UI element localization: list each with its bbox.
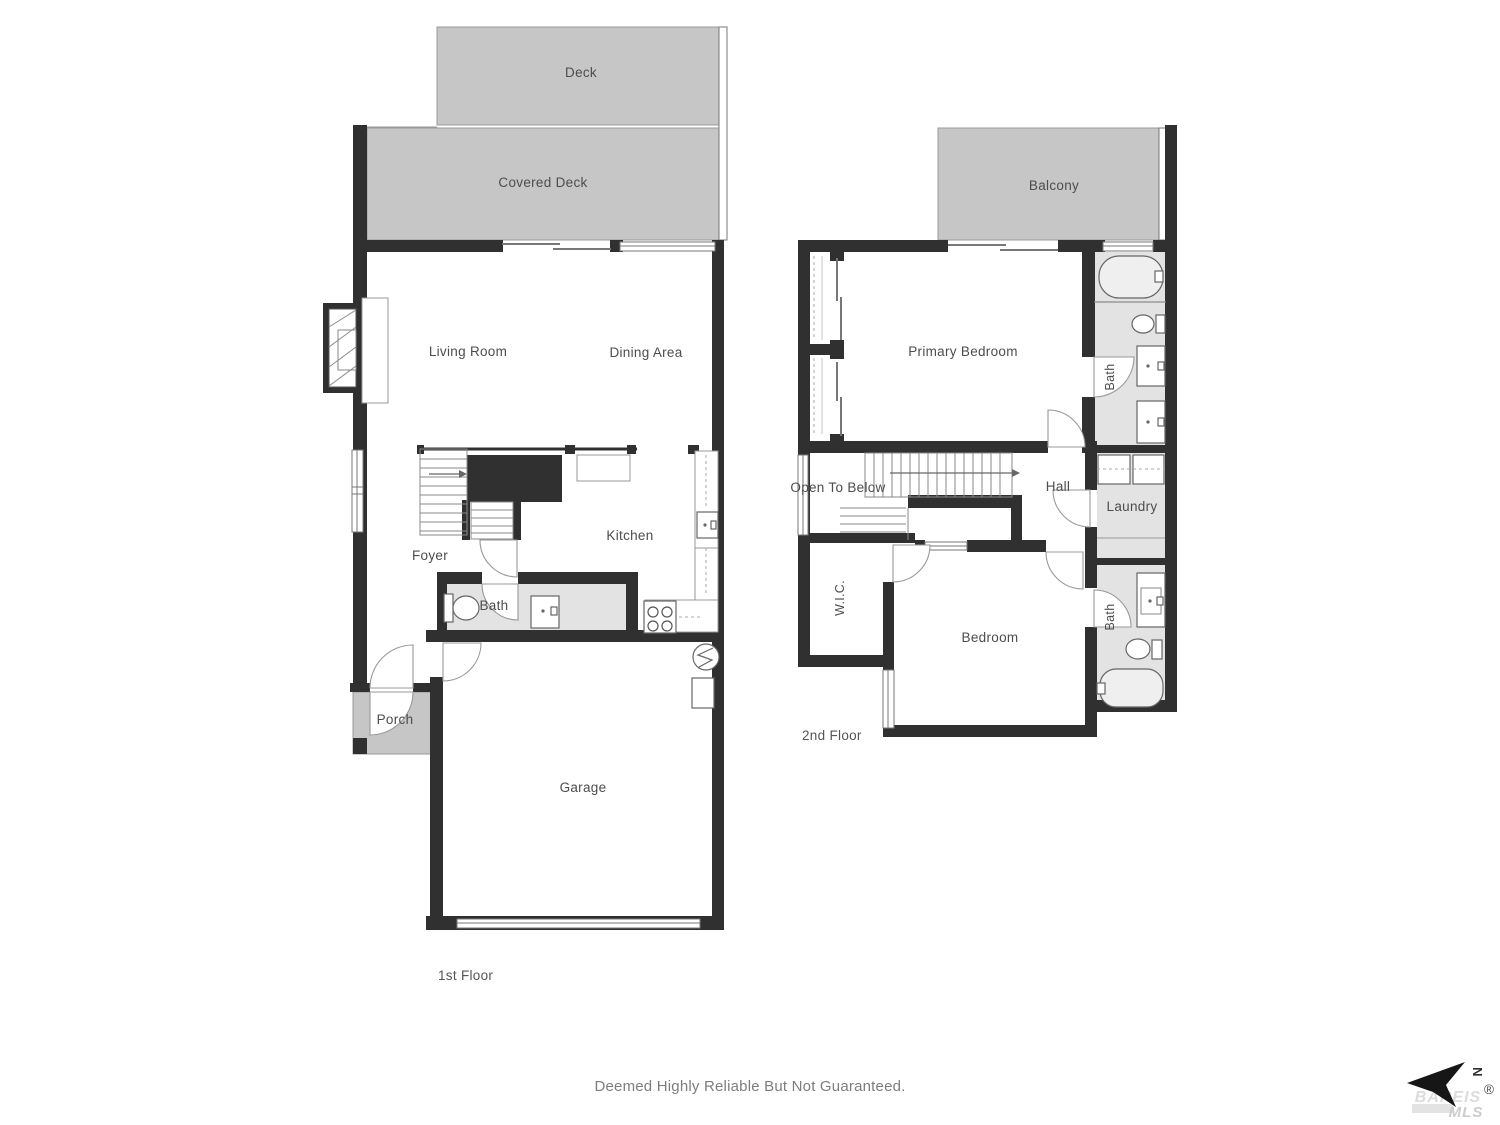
understair-closet-door-swing (480, 540, 517, 577)
primary-toilet (1132, 315, 1154, 333)
deck-label: Deck (565, 65, 597, 80)
toilet (453, 596, 479, 620)
deck-railing (719, 27, 727, 240)
floor-plan-page: Deck Covered Deck Living Room Dining Are… (0, 0, 1500, 1125)
front-door-swing-inner (370, 645, 413, 688)
garage-label: Garage (560, 780, 607, 795)
laundry-label: Laundry (1107, 499, 1158, 514)
bath2-toilet (1126, 639, 1150, 659)
wic-door-swing (893, 545, 930, 582)
disclaimer-text: Deemed Highly Reliable But Not Guarantee… (594, 1078, 905, 1095)
primary-bedroom-label: Primary Bedroom (908, 344, 1018, 359)
bedroom-door-swing (1046, 552, 1083, 589)
wic-label: W.I.C. (833, 580, 847, 616)
bath2-tub (1100, 669, 1163, 707)
floor-plan-drawing: Deck Covered Deck Living Room Dining Are… (0, 0, 1500, 1125)
primary-bathtub (1099, 256, 1163, 298)
second-floor-stairs (840, 453, 1020, 540)
kitchen-label: Kitchen (606, 528, 653, 543)
water-heater (693, 644, 719, 670)
primary-bedroom-door-swing (1048, 410, 1085, 447)
foyer-label: Foyer (412, 548, 448, 563)
bedroom-label: Bedroom (962, 630, 1019, 645)
covered-deck-label: Covered Deck (498, 175, 587, 190)
logo-compass-letter: N (1470, 1067, 1485, 1077)
second-floor-plan: Balcony Primary Bedroom Bath Open To Bel… (790, 125, 1177, 743)
first-floor-plan: Deck Covered Deck Living Room Dining Are… (323, 27, 727, 983)
second-floor-title: 2nd Floor (802, 728, 862, 743)
bareis-mls-logo: BAREIS ® MLS N (1407, 1062, 1494, 1121)
balcony-label: Balcony (1029, 178, 1079, 193)
fireplace (323, 298, 388, 403)
fireplace-hearth (362, 298, 388, 403)
washer (1098, 455, 1130, 484)
balcony-railing (1159, 128, 1166, 240)
logo-sub-text: MLS (1449, 1104, 1484, 1121)
living-room-label: Living Room (429, 344, 507, 359)
hall-label: Hall (1046, 479, 1070, 494)
porch-label: Porch (377, 712, 414, 727)
logo-registered-mark: ® (1484, 1082, 1494, 1097)
garage-entry-door-swing (443, 643, 481, 681)
primary-bath-label: Bath (1103, 364, 1117, 391)
bath-label: Bath (480, 598, 509, 613)
open-to-below-label: Open To Below (790, 480, 885, 495)
bath2-label: Bath (1103, 604, 1117, 631)
laundry-door-swing (1053, 490, 1090, 527)
dining-area-label: Dining Area (609, 345, 682, 360)
kitchen-peninsula (577, 455, 630, 481)
first-floor-title: 1st Floor (438, 968, 493, 983)
toilet-tank (444, 594, 453, 622)
